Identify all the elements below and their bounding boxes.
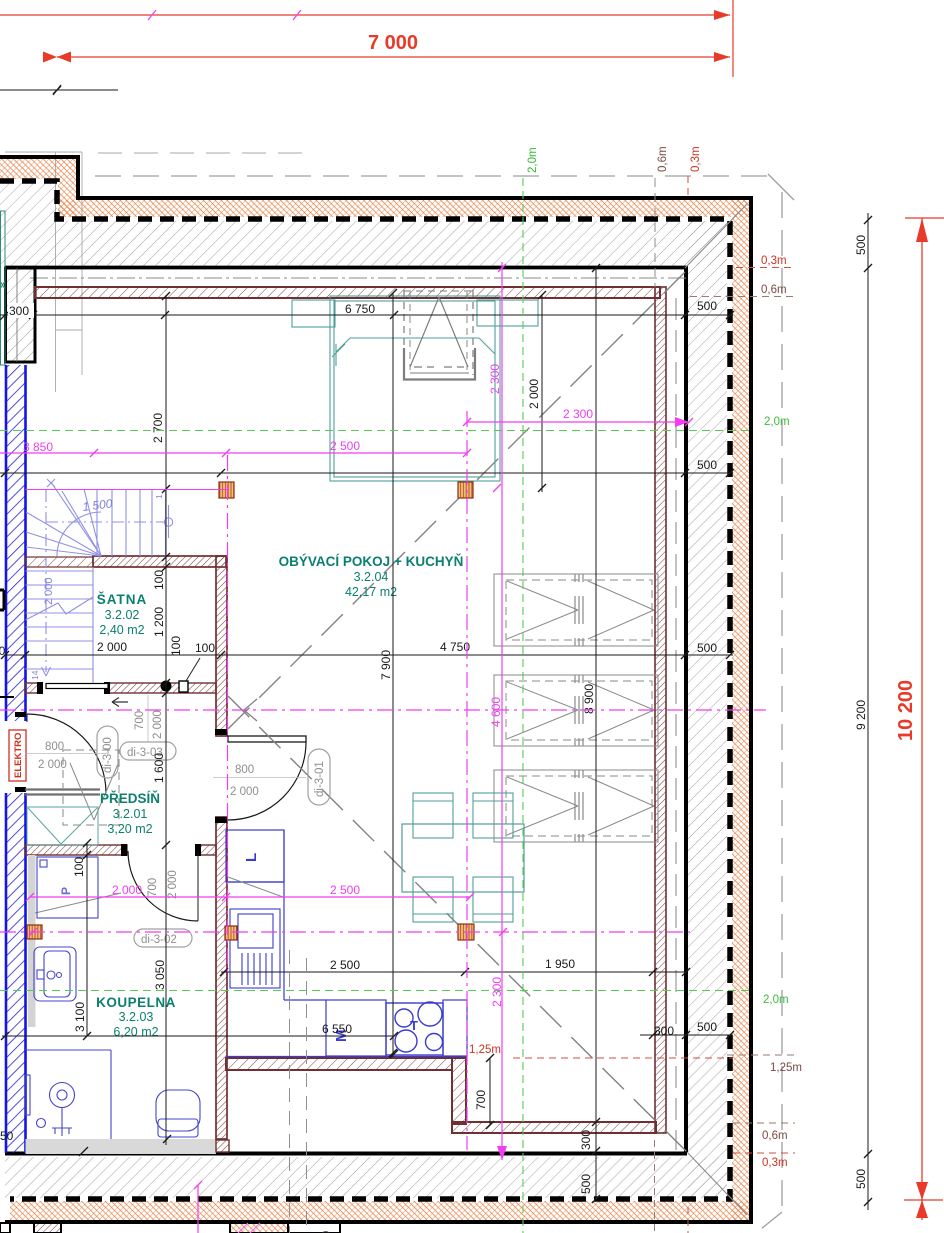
svg-text:500: 500 bbox=[697, 1020, 717, 1034]
svg-text:500: 500 bbox=[854, 1169, 868, 1189]
svg-text:300: 300 bbox=[654, 1024, 674, 1038]
svg-text:0,3m: 0,3m bbox=[761, 255, 787, 267]
svg-text:100: 100 bbox=[169, 636, 183, 656]
svg-text:500: 500 bbox=[697, 458, 717, 472]
svg-text:3 100: 3 100 bbox=[73, 1002, 87, 1032]
svg-text:700: 700 bbox=[147, 878, 159, 897]
svg-text:2 000: 2 000 bbox=[527, 379, 541, 409]
svg-text:100: 100 bbox=[152, 570, 166, 590]
svg-text:500: 500 bbox=[854, 235, 868, 255]
svg-text:1 200: 1 200 bbox=[152, 607, 166, 637]
svg-text:700: 700 bbox=[474, 1090, 488, 1110]
svg-text:PŘEDSÍŇ: PŘEDSÍŇ bbox=[100, 791, 160, 806]
svg-text:1,25m: 1,25m bbox=[770, 1062, 802, 1074]
svg-text:3.2.01: 3.2.01 bbox=[113, 807, 148, 821]
svg-text:10 200: 10 200 bbox=[895, 680, 917, 741]
svg-text:9 200: 9 200 bbox=[854, 700, 868, 730]
svg-text:2 000: 2 000 bbox=[43, 577, 55, 605]
svg-text:di-3-02: di-3-02 bbox=[141, 934, 177, 946]
svg-text:6 750: 6 750 bbox=[345, 302, 375, 316]
svg-text:2 300: 2 300 bbox=[563, 407, 593, 421]
svg-text:500: 500 bbox=[697, 641, 717, 655]
svg-text:2 000: 2 000 bbox=[112, 883, 142, 897]
svg-text:500: 500 bbox=[579, 1174, 593, 1194]
svg-text:300: 300 bbox=[579, 1130, 593, 1150]
svg-text:800: 800 bbox=[45, 741, 64, 753]
svg-text:2 300: 2 300 bbox=[488, 364, 502, 394]
svg-text:1 950: 1 950 bbox=[545, 957, 575, 971]
svg-text:500: 500 bbox=[697, 299, 717, 313]
svg-text:0,3m: 0,3m bbox=[690, 146, 702, 172]
svg-text:50: 50 bbox=[0, 1129, 14, 1143]
svg-text:6,20 m2: 6,20 m2 bbox=[113, 1025, 158, 1039]
svg-text:1 600: 1 600 bbox=[152, 753, 166, 783]
svg-text:2 300: 2 300 bbox=[490, 977, 504, 1007]
svg-text:6 550: 6 550 bbox=[322, 1022, 352, 1036]
svg-text:3 850: 3 850 bbox=[23, 440, 53, 454]
svg-text:100: 100 bbox=[72, 857, 86, 877]
svg-text:3,20 m2: 3,20 m2 bbox=[107, 822, 152, 836]
svg-text:4 750: 4 750 bbox=[440, 640, 470, 654]
svg-text:2,0m: 2,0m bbox=[527, 147, 539, 173]
svg-text:OBÝVACÍ POKOJ + KUCHYŇ: OBÝVACÍ POKOJ + KUCHYŇ bbox=[279, 554, 464, 569]
svg-text:P: P bbox=[59, 887, 73, 895]
svg-text:3.2.02: 3.2.02 bbox=[105, 608, 140, 622]
svg-text:2,0m: 2,0m bbox=[764, 416, 790, 428]
svg-text:4 600: 4 600 bbox=[489, 697, 503, 727]
svg-text:di-3-00: di-3-00 bbox=[102, 737, 114, 773]
svg-text:7 900: 7 900 bbox=[379, 650, 393, 680]
svg-text:2 500: 2 500 bbox=[330, 958, 360, 972]
svg-text:100: 100 bbox=[195, 641, 215, 655]
svg-text:1,25m: 1,25m bbox=[469, 1044, 501, 1056]
svg-text:2,0m: 2,0m bbox=[763, 994, 789, 1006]
svg-text:7 000: 7 000 bbox=[368, 32, 418, 54]
svg-text:0,6m: 0,6m bbox=[657, 146, 669, 172]
svg-text:T: T bbox=[410, 1018, 418, 1033]
svg-text:2 000: 2 000 bbox=[38, 759, 67, 771]
svg-text:2 000: 2 000 bbox=[97, 640, 127, 654]
svg-text:KOUPELNA: KOUPELNA bbox=[96, 995, 176, 1010]
svg-text:700: 700 bbox=[134, 711, 146, 730]
svg-text:2 000: 2 000 bbox=[152, 710, 164, 739]
svg-text:di-3-01: di-3-01 bbox=[314, 761, 326, 797]
svg-text:ŠATNA: ŠATNA bbox=[97, 592, 148, 607]
svg-text:3.2.03: 3.2.03 bbox=[119, 1010, 154, 1024]
svg-text:3.2.04: 3.2.04 bbox=[354, 570, 389, 584]
svg-text:0,6m: 0,6m bbox=[762, 1130, 788, 1142]
svg-text:0,6m: 0,6m bbox=[761, 284, 787, 296]
svg-text:2 500: 2 500 bbox=[330, 883, 360, 897]
svg-text:42,17 m2: 42,17 m2 bbox=[345, 585, 397, 599]
svg-text:800: 800 bbox=[235, 764, 254, 776]
svg-text:3 050: 3 050 bbox=[153, 960, 167, 990]
svg-text:2 500: 2 500 bbox=[330, 439, 360, 453]
svg-text:300: 300 bbox=[9, 304, 29, 318]
svg-text:1: 1 bbox=[154, 494, 164, 499]
svg-text:2,40 m2: 2,40 m2 bbox=[99, 623, 144, 637]
svg-text:L: L bbox=[243, 853, 260, 862]
svg-text:0,3m: 0,3m bbox=[762, 1157, 788, 1169]
svg-text:ELEKTRO: ELEKTRO bbox=[13, 733, 24, 778]
svg-text:2 000: 2 000 bbox=[230, 786, 259, 798]
svg-text:30: 30 bbox=[0, 644, 6, 658]
svg-text:2 000: 2 000 bbox=[167, 870, 179, 899]
svg-text:14: 14 bbox=[30, 670, 40, 680]
svg-text:2 700: 2 700 bbox=[151, 413, 165, 443]
